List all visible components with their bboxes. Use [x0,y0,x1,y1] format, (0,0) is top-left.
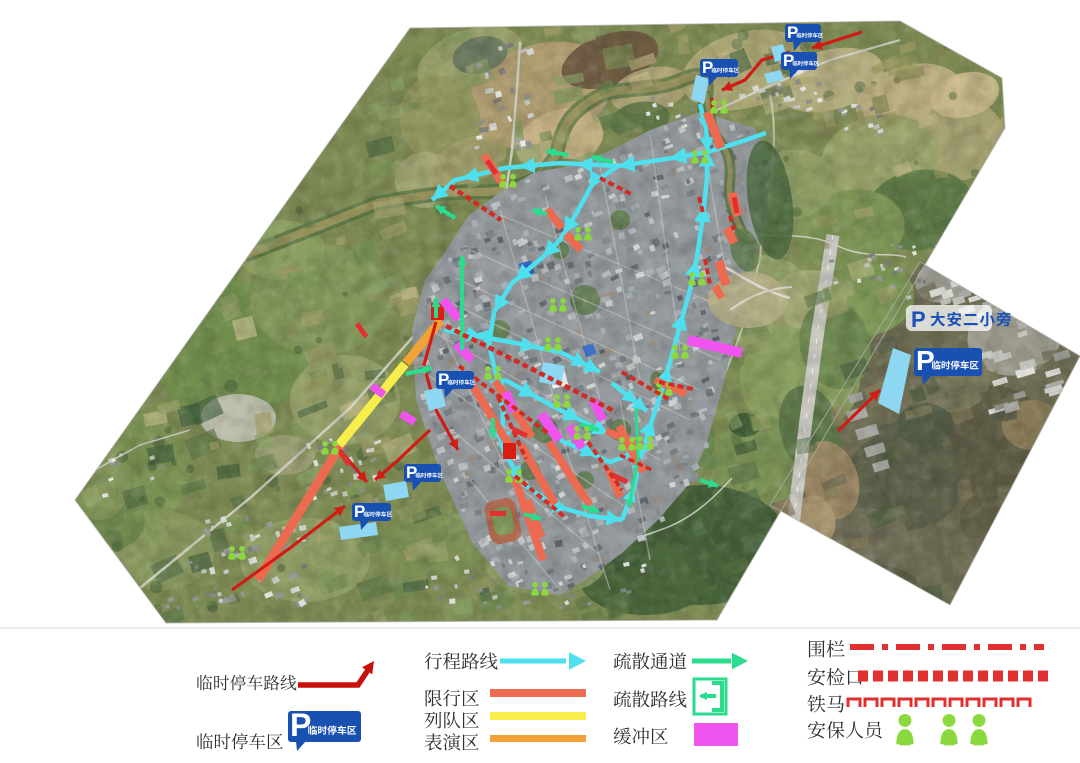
svg-text:P: P [438,370,449,389]
svg-text:P: P [787,23,798,42]
svg-text:P: P [290,707,311,743]
svg-text:P: P [354,502,365,521]
svg-text:P: P [911,307,926,332]
svg-text:P: P [702,58,713,77]
svg-text:P: P [916,345,935,376]
svg-text:P: P [783,51,794,70]
svg-text:P: P [406,463,417,482]
